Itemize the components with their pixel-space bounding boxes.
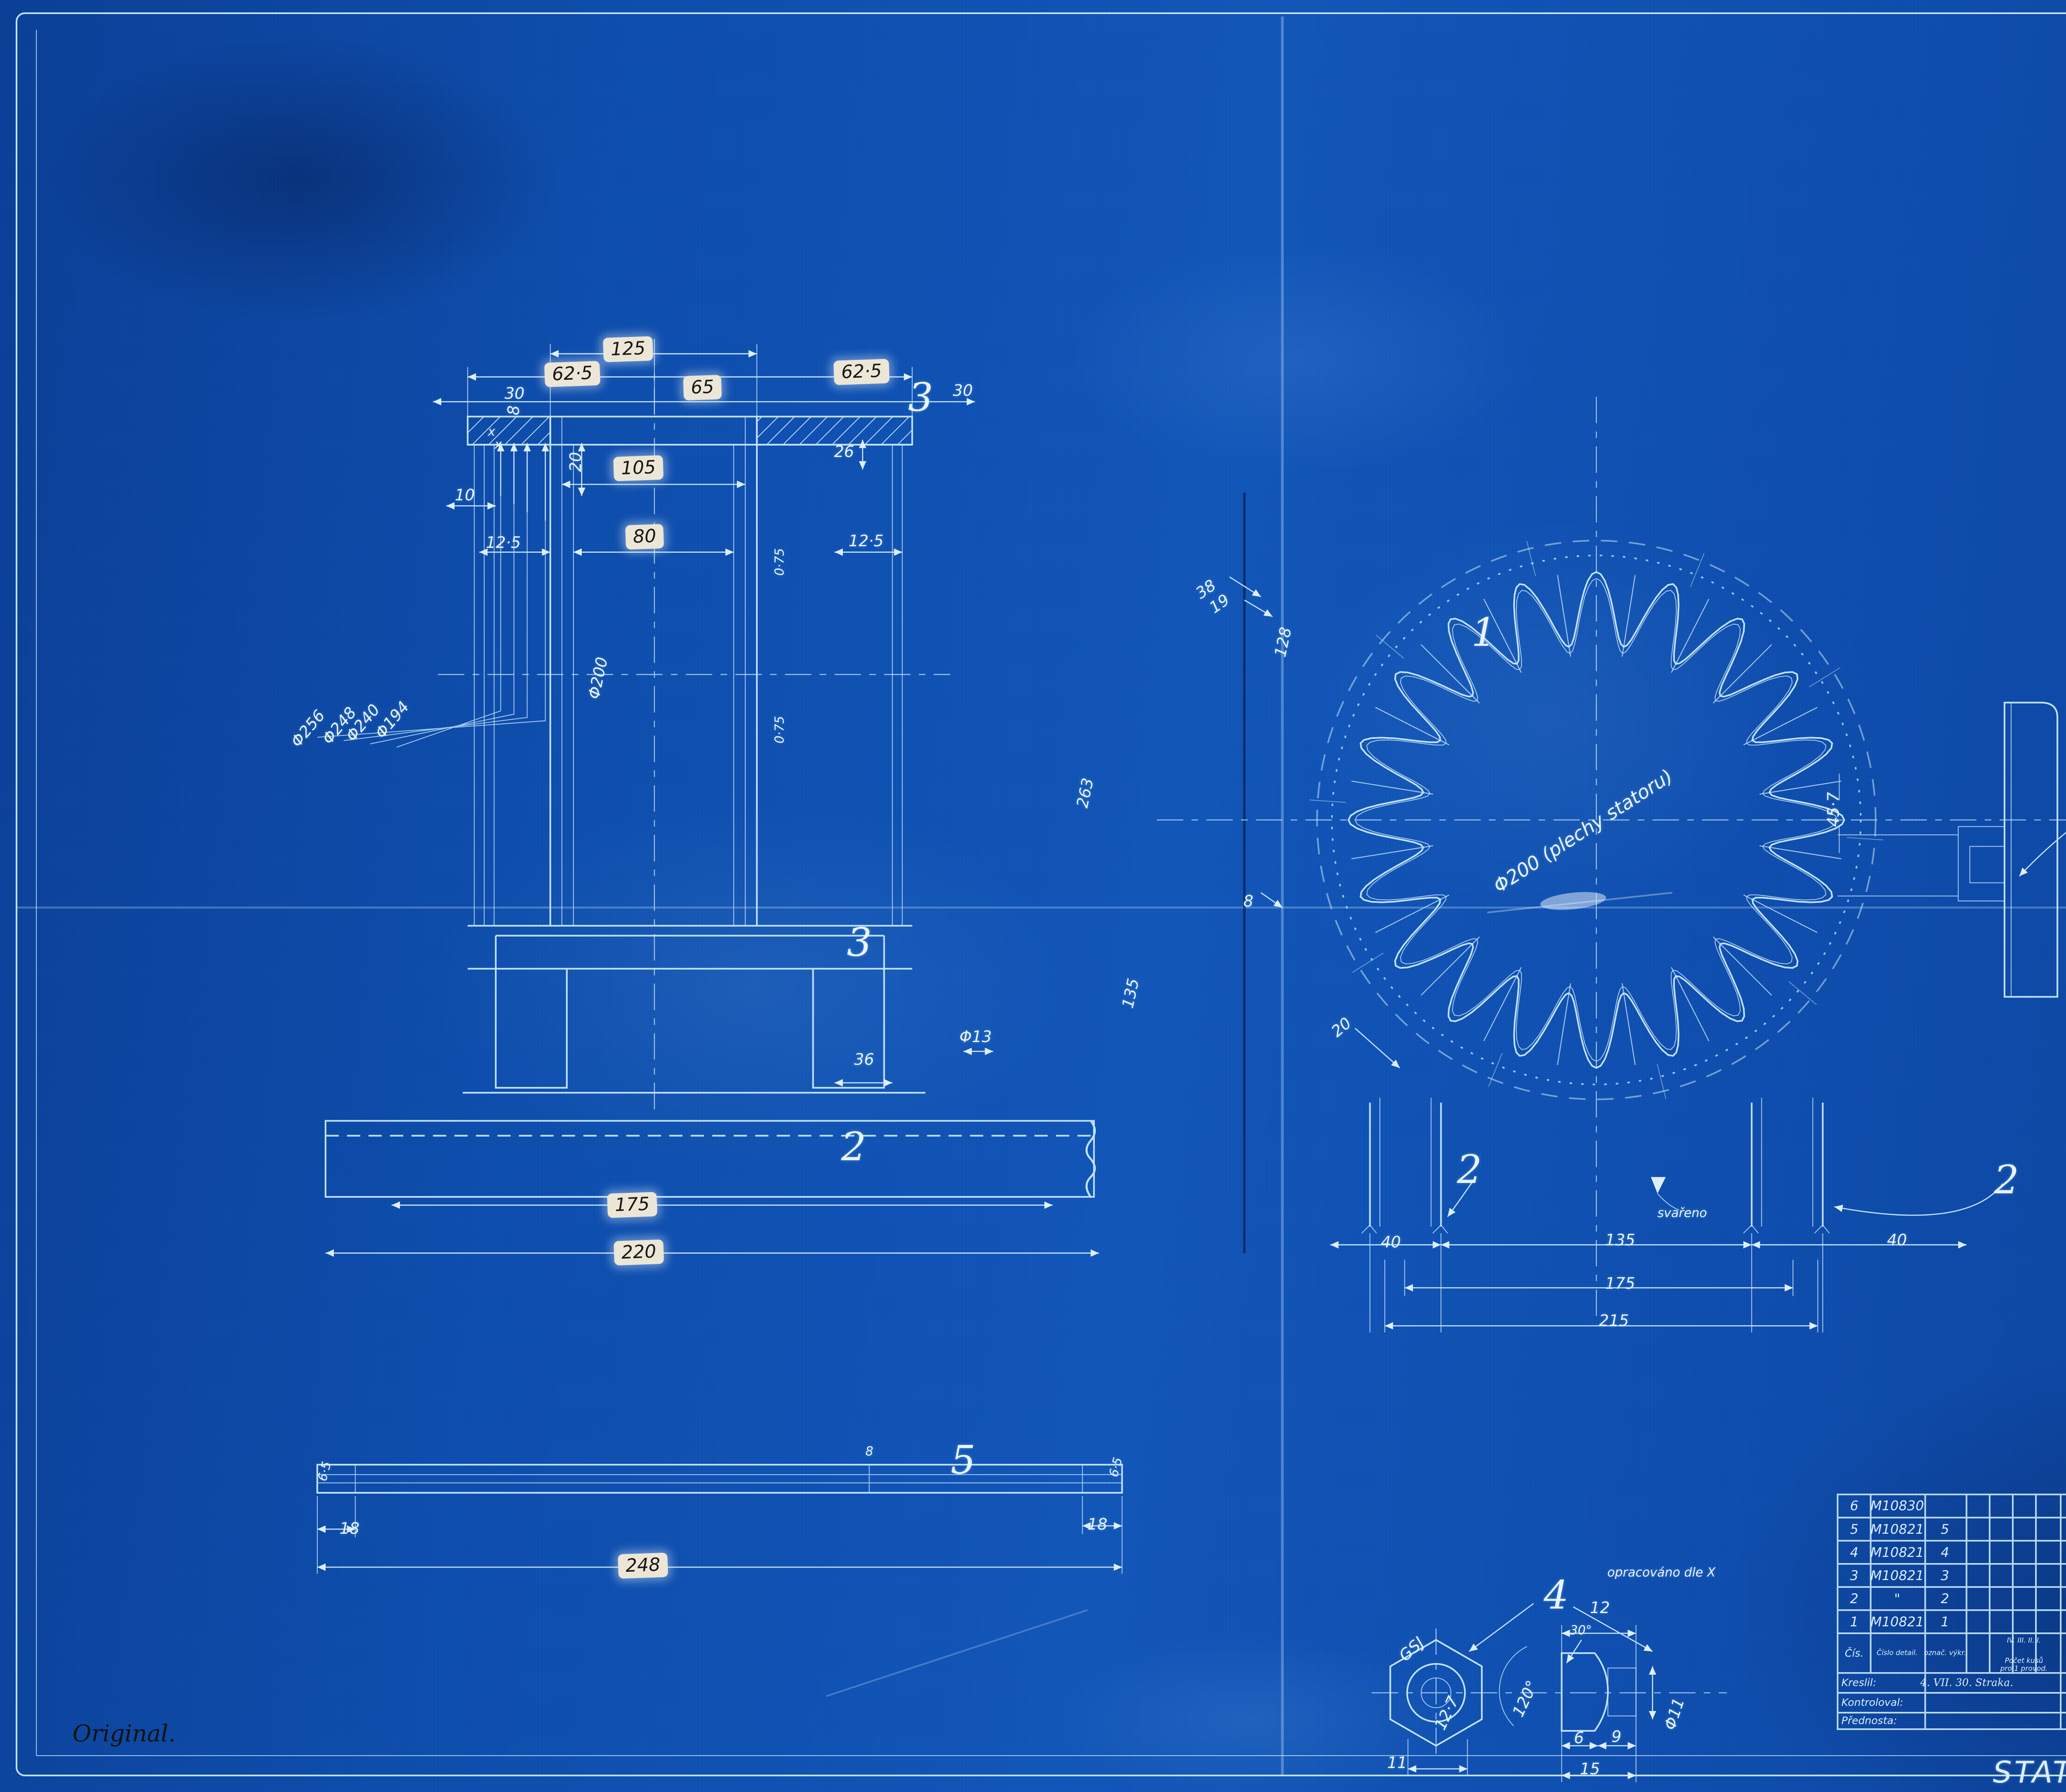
view-label-3: 3 xyxy=(847,920,871,965)
table-cell-cis: 5 xyxy=(1850,1521,1858,1537)
dim-phi13: Φ13 xyxy=(959,1028,992,1046)
dim-8-gear: 8 xyxy=(1243,892,1253,910)
patch-dim-62-5-right: 62·5 xyxy=(833,359,890,385)
x-mark-1: x xyxy=(488,425,495,439)
table-cell-cislo: M10821 xyxy=(1871,1614,1924,1630)
dimension-lines xyxy=(317,344,1966,1782)
table-cell-ozn: 3 xyxy=(1941,1568,1949,1583)
view-label-4-nut: 4 xyxy=(1544,1573,1569,1618)
dim-8-rod: 8 xyxy=(865,1444,873,1459)
table-cell-cis: 4 xyxy=(1850,1544,1858,1560)
table-cell-cislo: M10830 xyxy=(1871,1498,1924,1514)
patch-dim-80: 80 xyxy=(625,524,664,550)
dim-30-left: 30 xyxy=(505,384,524,402)
table-header-pocet: IV. III. II. I. xyxy=(1999,1637,2049,1644)
table-header-pocet2: Počet kusů pro 1 provod. xyxy=(1999,1657,2049,1672)
tie-rod-view xyxy=(317,1465,1122,1493)
label-kontroloval: Kontroloval: xyxy=(1842,1697,1904,1709)
dim-40-right: 40 xyxy=(1887,1231,1907,1249)
weld-note-svareno: svařeno xyxy=(1657,1206,1707,1221)
dim-6-nut: 6 xyxy=(1574,1729,1584,1747)
value-kreslil-signature: 4. VII. 30. Straka. xyxy=(1920,1677,2013,1689)
dim-40-left: 40 xyxy=(1381,1233,1401,1251)
table-cell-ozn: 2 xyxy=(1941,1591,1949,1606)
dim-12-5-right: 12·5 xyxy=(849,532,884,550)
stator-feet xyxy=(1361,1098,1829,1233)
view-label-2-right-foot: 2 xyxy=(1994,1157,2019,1203)
dim-11-nut: 11 xyxy=(1387,1754,1407,1772)
dim-8-flange: 8 xyxy=(505,405,523,415)
patch-dim-175: 175 xyxy=(607,1192,657,1218)
view-label-2-bar: 2 xyxy=(841,1124,866,1170)
patch-dim-65: 65 xyxy=(683,375,722,400)
weld-symbol xyxy=(1651,1177,1666,1194)
dim-45-7: 45·7 xyxy=(1824,792,1842,827)
table-cell-ozn: 5 xyxy=(1941,1521,1949,1537)
patch-dim-248: 248 xyxy=(618,1552,668,1578)
patch-dim-220: 220 xyxy=(614,1240,664,1266)
dim-12-5-left: 12·5 xyxy=(486,533,521,552)
dim-15-nut: 15 xyxy=(1580,1760,1600,1778)
patch-dim-105: 105 xyxy=(613,455,664,481)
blueprint-sheet: 30 30 3 8 10 20 26 x x 12·5 12·5 Φ200 Φ2… xyxy=(0,0,2066,1792)
leader-lines xyxy=(317,443,2066,1663)
terminal-box xyxy=(1838,702,2057,997)
drawing-title-stator: STATOR xyxy=(1993,1755,2066,1790)
dim-175-gear: 175 xyxy=(1605,1274,1635,1292)
table-cell-cis: 2 xyxy=(1850,1591,1858,1606)
sheet-frame xyxy=(17,0,2066,1792)
dim-9-nut: 9 xyxy=(1611,1728,1621,1746)
dim-075-upper: 0·75 xyxy=(772,548,787,576)
stator-foot-bar-view xyxy=(326,1121,1095,1197)
label-kreslil: Kreslil: xyxy=(1842,1677,1876,1689)
table-cell-cis: 6 xyxy=(1850,1498,1858,1514)
dim-075-lower: 0·75 xyxy=(772,716,787,744)
dim-26: 26 xyxy=(834,443,854,461)
view-label-2-left-foot: 2 xyxy=(1457,1147,1482,1192)
table-cell-ozn: 1 xyxy=(1941,1614,1949,1630)
x-mark-2: x xyxy=(495,438,502,452)
stator-lamination-view xyxy=(1157,397,2066,1323)
dim-10: 10 xyxy=(455,486,475,504)
dim-18-left: 18 xyxy=(340,1519,359,1537)
table-header-ozn: označ. výkr. xyxy=(1920,1649,1970,1657)
view-label-5: 5 xyxy=(951,1437,976,1483)
dim-20-flange: 20 xyxy=(566,452,585,472)
table-cell-cislo: " xyxy=(1894,1591,1900,1606)
dim-30deg: 30° xyxy=(1570,1623,1592,1637)
table-cell-cis: 3 xyxy=(1850,1568,1858,1583)
original-stamp: Original. xyxy=(72,1721,176,1747)
dim-36: 36 xyxy=(854,1050,874,1069)
table-cell-cislo: M10821 xyxy=(1871,1568,1924,1583)
table-cell-cislo: M10821 xyxy=(1871,1544,1924,1560)
table-header-cis: Čís. xyxy=(1845,1647,1864,1659)
dim-18-right: 18 xyxy=(1088,1515,1107,1533)
dim-30-right: 30 xyxy=(953,381,973,400)
dim-215-gear: 215 xyxy=(1599,1311,1629,1330)
dim-12-nut: 12 xyxy=(1590,1599,1610,1617)
stator-section-view xyxy=(438,339,950,1111)
note-machined-per-x: opracováno dle X xyxy=(1607,1566,1716,1580)
table-cell-cislo: M10821 xyxy=(1871,1521,1924,1537)
patch-dim-125: 125 xyxy=(603,336,653,362)
dim-135-gear: 135 xyxy=(1605,1231,1635,1249)
view-label-1-gear: 1 xyxy=(1471,610,1496,655)
table-cell-cis: 1 xyxy=(1850,1614,1858,1630)
patch-dim-62-5-left: 62·5 xyxy=(544,361,600,387)
drawing-linework xyxy=(0,0,2066,1792)
label-prednosta: Přednosta: xyxy=(1842,1714,1897,1726)
table-cell-ozn: 4 xyxy=(1941,1544,1949,1560)
view-label-3-top: 3 xyxy=(908,375,933,420)
table-header-cislo: Číslo detail. xyxy=(1872,1649,1922,1657)
